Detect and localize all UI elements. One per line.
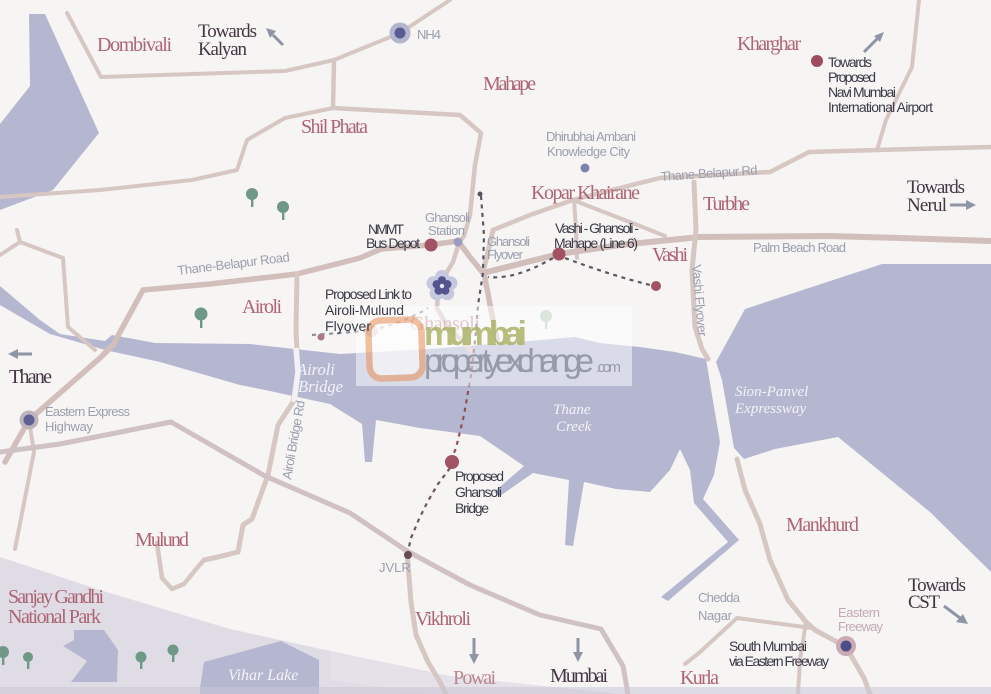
svg-text:.com: .com xyxy=(596,359,621,376)
svg-text:via Eastern Freeway: via Eastern Freeway xyxy=(729,653,829,669)
svg-text:Thane: Thane xyxy=(9,366,52,388)
svg-text:Sanjay Gandhi: Sanjay Gandhi xyxy=(8,586,104,608)
svg-text:propertyexchange: propertyexchange xyxy=(424,342,594,379)
svg-text:Airoli: Airoli xyxy=(242,296,282,318)
svg-text:Mankhurd: Mankhurd xyxy=(786,514,859,536)
svg-text:Thane: Thane xyxy=(553,402,591,418)
svg-text:Eastern: Eastern xyxy=(838,605,880,620)
svg-text:Freeway: Freeway xyxy=(838,619,884,634)
svg-text:Chedda: Chedda xyxy=(698,590,741,605)
svg-text:Nerul: Nerul xyxy=(907,195,947,216)
svg-text:Flyover: Flyover xyxy=(325,318,371,334)
svg-text:Knowledge City: Knowledge City xyxy=(547,144,631,159)
svg-text:Bridge: Bridge xyxy=(455,500,489,516)
svg-text:Navi Mumbai: Navi Mumbai xyxy=(828,84,896,100)
svg-text:National Park: National Park xyxy=(8,606,101,628)
svg-text:Mahape: Mahape xyxy=(483,73,536,95)
svg-text:Mumbai: Mumbai xyxy=(550,665,608,687)
svg-text:Palm Beach Road: Palm Beach Road xyxy=(753,240,846,255)
svg-text:Creek: Creek xyxy=(556,419,592,435)
svg-text:Shil Phata: Shil Phata xyxy=(301,116,368,138)
svg-text:Highway: Highway xyxy=(45,419,94,434)
svg-text:Flyover: Flyover xyxy=(487,247,524,262)
svg-text:Turbhe: Turbhe xyxy=(703,193,750,215)
svg-text:NH4: NH4 xyxy=(417,27,441,42)
svg-text:South Mumbai: South Mumbai xyxy=(729,638,807,654)
svg-text:Airoli-Mulund: Airoli-Mulund xyxy=(325,302,404,318)
svg-text:Vikhroli: Vikhroli xyxy=(415,608,471,630)
svg-text:Nagar: Nagar xyxy=(698,608,733,623)
svg-text:Kurla: Kurla xyxy=(680,667,719,689)
svg-text:Vashi - Ghansoli -: Vashi - Ghansoli - xyxy=(555,220,639,236)
svg-text:Ghansoli: Ghansoli xyxy=(455,484,502,500)
svg-text:Sion-Panvel: Sion-Panvel xyxy=(735,384,808,400)
svg-text:Mulund: Mulund xyxy=(135,529,189,551)
svg-text:Towards: Towards xyxy=(828,54,872,70)
svg-text:Powai: Powai xyxy=(453,667,496,689)
svg-text:Kalyan: Kalyan xyxy=(198,39,248,60)
svg-text:CST: CST xyxy=(908,592,940,613)
svg-text:Dhirubhai Ambani: Dhirubhai Ambani xyxy=(546,129,636,144)
svg-text:Proposed: Proposed xyxy=(455,468,504,484)
svg-text:Proposed: Proposed xyxy=(828,69,876,85)
svg-text:Kopar Khairane: Kopar Khairane xyxy=(531,182,640,204)
svg-text:Kharghar: Kharghar xyxy=(737,33,801,55)
svg-text:Bus Depot: Bus Depot xyxy=(366,235,420,251)
svg-text:Bridge: Bridge xyxy=(298,377,343,396)
svg-text:Proposed Link to: Proposed Link to xyxy=(325,286,412,302)
svg-text:International Airport: International Airport xyxy=(828,99,933,115)
svg-text:JVLR: JVLR xyxy=(379,560,411,575)
svg-text:Mahape (Line 6): Mahape (Line 6) xyxy=(554,235,638,251)
svg-text:Dombivali: Dombivali xyxy=(97,34,172,56)
svg-text:Vashi: Vashi xyxy=(652,244,688,266)
svg-text:Expressway: Expressway xyxy=(734,401,806,417)
svg-text:Vihar Lake: Vihar Lake xyxy=(228,667,298,684)
svg-text:Eastern Express: Eastern Express xyxy=(45,404,131,419)
svg-text:Station: Station xyxy=(428,223,465,238)
